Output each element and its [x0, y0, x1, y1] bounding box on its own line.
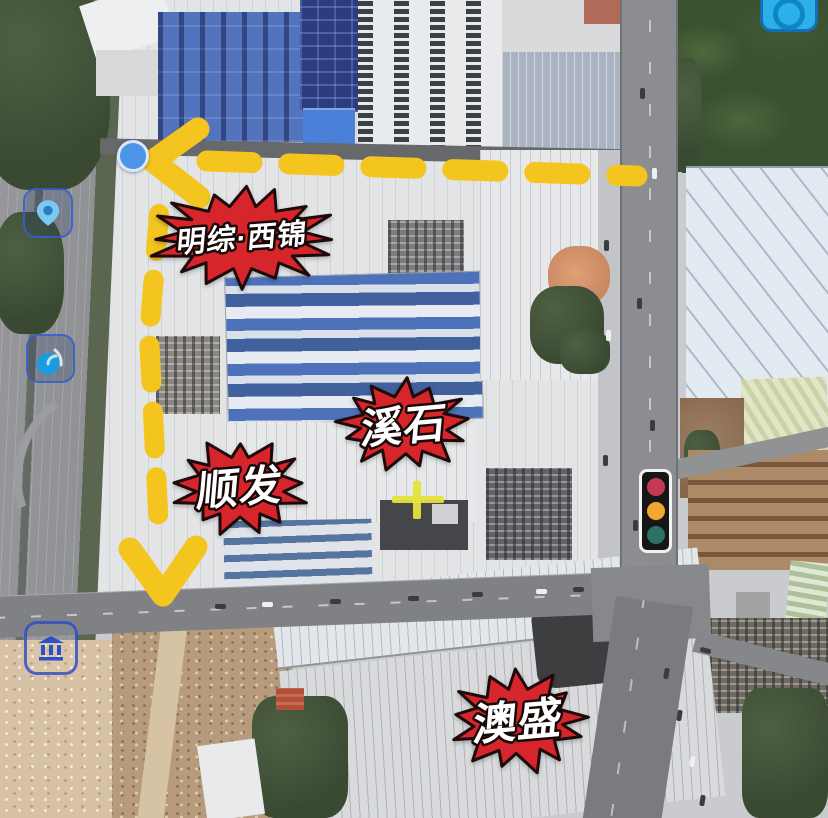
navigation-signal-icon [34, 342, 68, 376]
map-region-red-hut [276, 688, 304, 710]
bank-poi-button[interactable] [24, 621, 78, 675]
location-pin-button[interactable] [23, 188, 73, 238]
location-pin-icon [32, 197, 64, 229]
map-region-trees-mid-2 [560, 330, 610, 374]
map-crosshair [413, 481, 421, 519]
traffic-light-red [647, 478, 665, 496]
map-region-trees-bottom-center [252, 696, 348, 818]
traffic-light-amber [647, 502, 665, 520]
traffic-light-icon[interactable] [639, 469, 672, 553]
map-region-village-c [486, 468, 572, 560]
map-region-gray-ribbed-warehouse [502, 52, 622, 150]
map-region-skylight-warehouse [358, 0, 502, 150]
label-burst-aosheng: 澳盛 [442, 662, 594, 780]
label-burst-shunfa: 顺发 [165, 432, 315, 542]
camera-button[interactable] [760, 0, 818, 32]
route-start-marker [117, 140, 149, 172]
camera-lens-icon [773, 0, 805, 30]
burst-label-text: 顺发 [195, 461, 285, 516]
navigation-button[interactable] [26, 334, 75, 383]
traffic-light-green [647, 526, 665, 544]
burst-label-text: 澳盛 [471, 693, 565, 750]
label-burst-mingzong-xijin: 明综·西锦 [140, 180, 345, 295]
label-burst-xishi: 溪石 [330, 372, 478, 478]
map-region-trees-bottom-right [742, 688, 828, 818]
map-region-solar-panel-roof [300, 0, 358, 112]
map-region-small-hut [432, 504, 458, 524]
map-region-red-roof-building [584, 0, 622, 24]
bank-building-icon [36, 633, 66, 663]
map-canvas[interactable]: 明综·西锦 溪石 顺发 澳盛 [0, 0, 828, 818]
burst-label-text: 溪石 [359, 399, 449, 454]
map-region-white-shed-bottom [197, 738, 265, 818]
map-region-bright-blue-gable [303, 108, 355, 144]
map-region-village-b [156, 336, 220, 414]
map-region-green-striped-shed [785, 560, 828, 623]
map-region-gray-shed [96, 50, 160, 96]
